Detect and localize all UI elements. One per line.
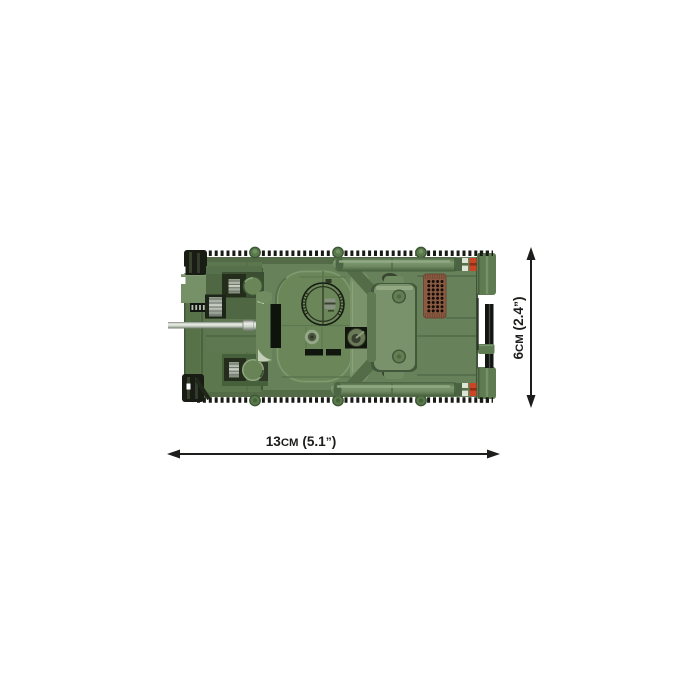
svg-text:6CM (2.4”): 6CM (2.4”) xyxy=(511,296,526,359)
svg-text:13CM (5.1”): 13CM (5.1”) xyxy=(266,434,337,449)
